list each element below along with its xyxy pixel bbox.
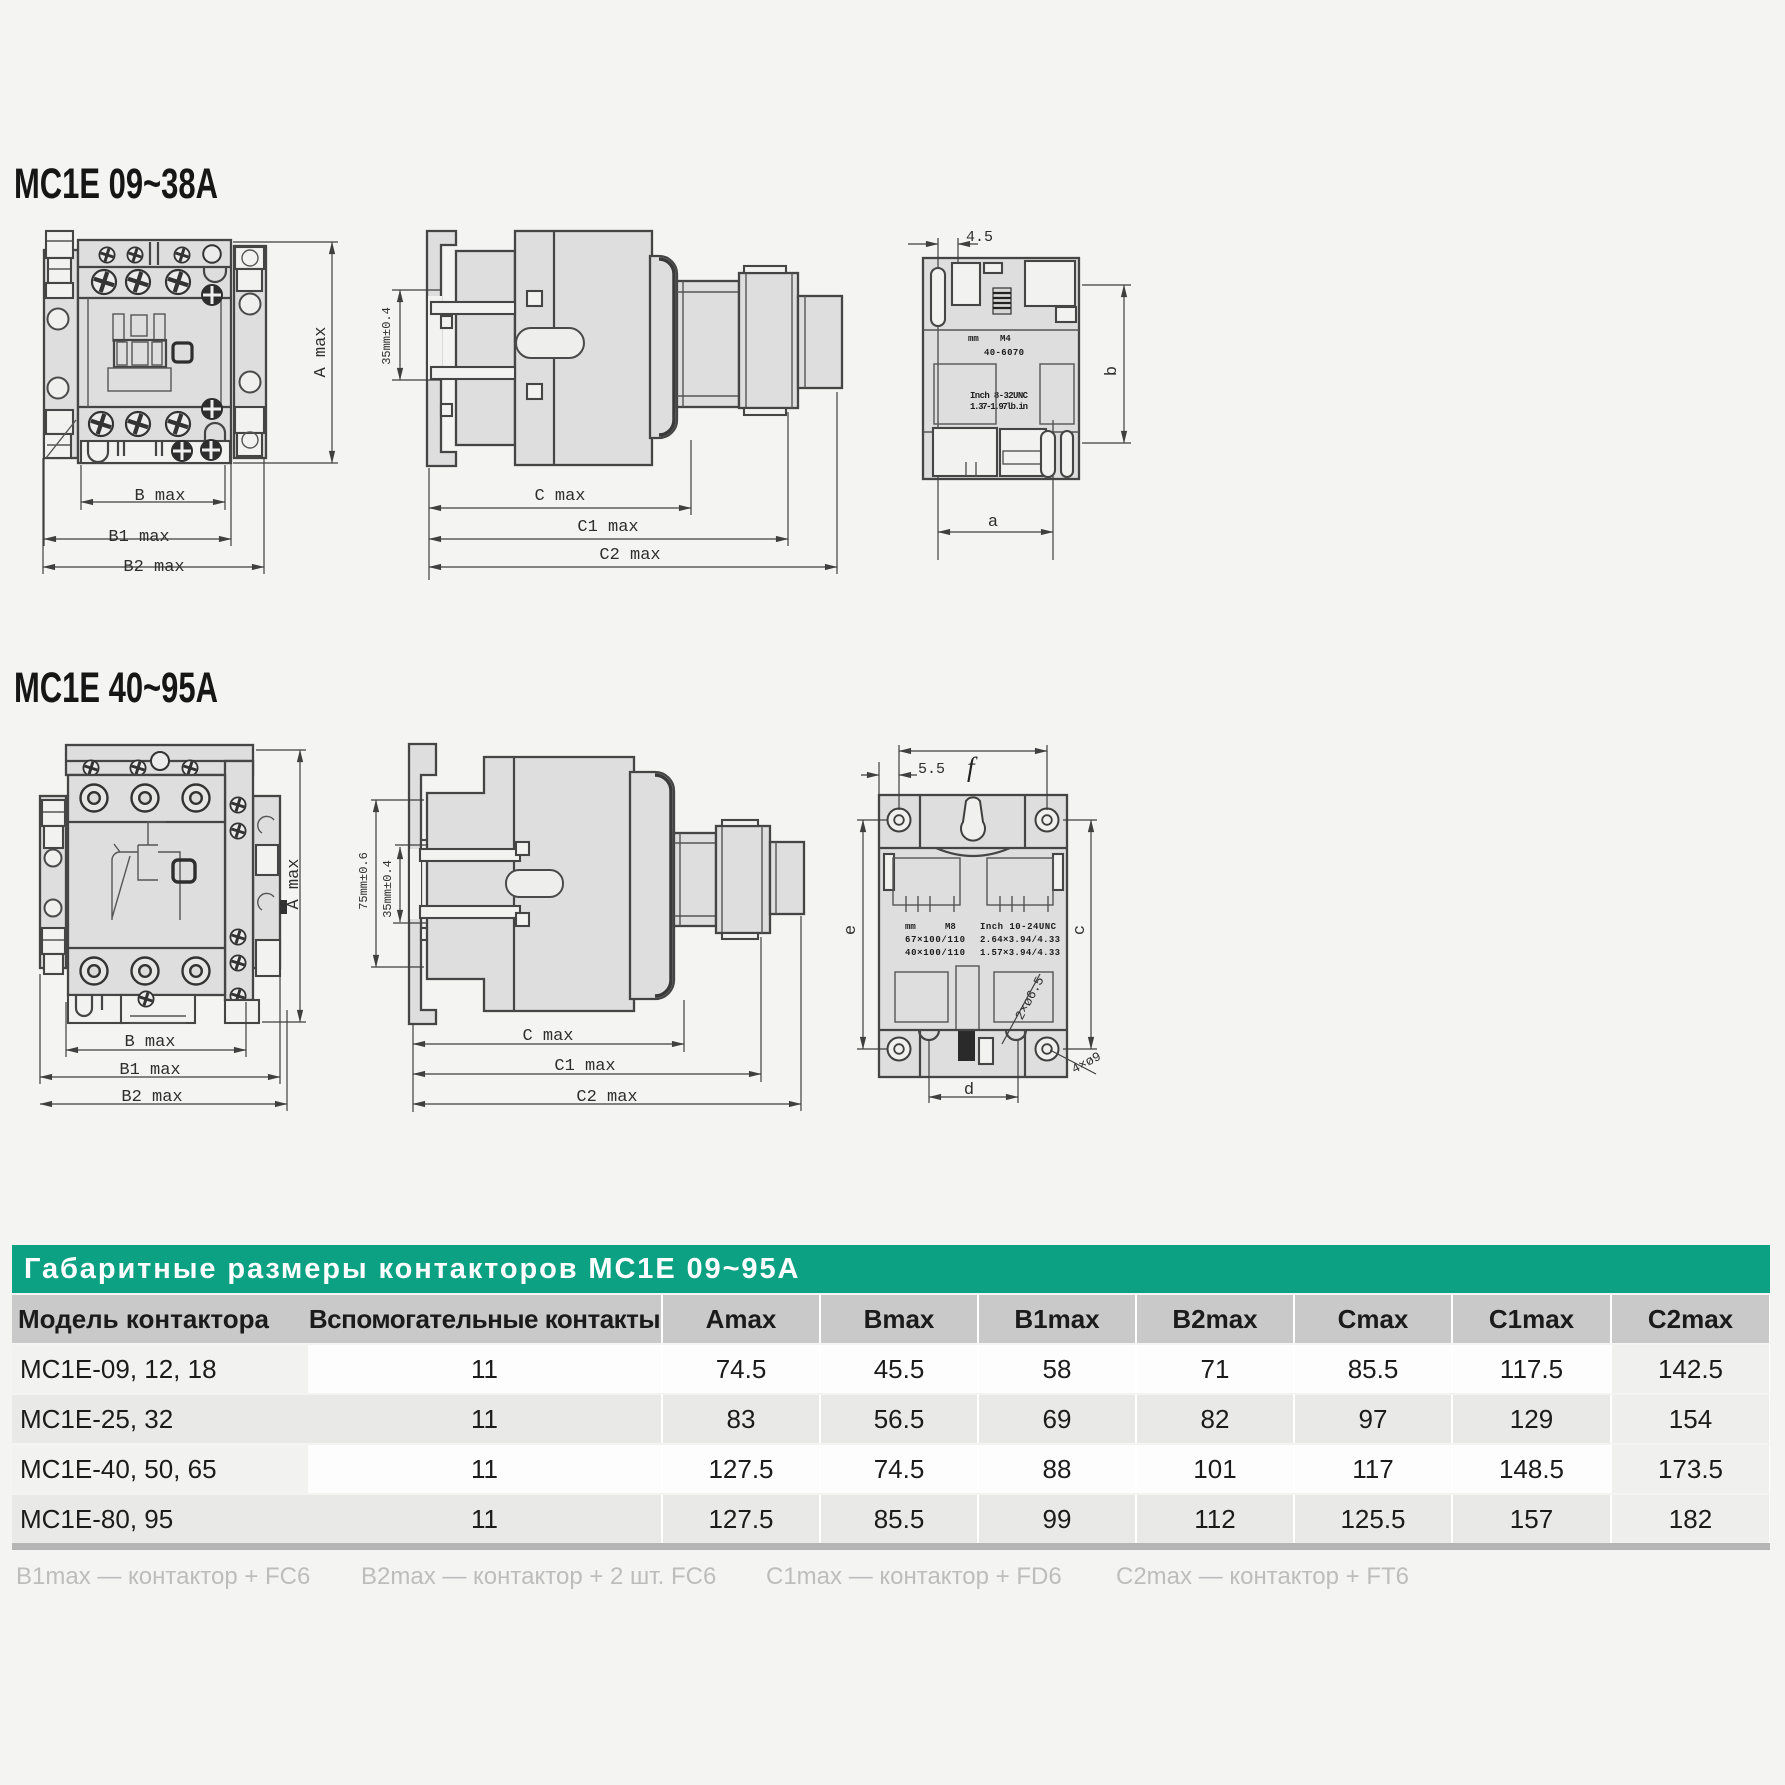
svg-text:Inch 8-32UNC: Inch 8-32UNC: [970, 391, 1029, 401]
svg-text:M8: M8: [945, 922, 956, 932]
svg-text:B2 max: B2 max: [121, 1088, 182, 1107]
svg-text:B max: B max: [134, 487, 185, 506]
svg-text:A max: A max: [312, 326, 331, 377]
svg-text:C2 max: C2 max: [599, 546, 660, 565]
svg-text:1.37-1.97lb.in: 1.37-1.97lb.in: [970, 402, 1028, 412]
svg-text:40-6070: 40-6070: [984, 348, 1024, 358]
svg-text:C2 max: C2 max: [576, 1088, 637, 1107]
svg-text:Inch 10-24UNC: Inch 10-24UNC: [980, 922, 1057, 932]
svg-text:b: b: [1103, 366, 1122, 376]
svg-text:B1 max: B1 max: [108, 528, 169, 547]
svg-text:2.64×3.94/4.33: 2.64×3.94/4.33: [980, 935, 1060, 945]
svg-text:35mm±0.4: 35mm±0.4: [380, 307, 394, 365]
svg-text:d: d: [964, 1081, 974, 1100]
svg-text:C1 max: C1 max: [554, 1057, 615, 1076]
svg-text:mm: mm: [968, 334, 979, 344]
svg-text:e: e: [842, 925, 861, 935]
svg-text:67×100/110: 67×100/110: [905, 935, 965, 945]
svg-text:5.5: 5.5: [918, 761, 945, 778]
svg-text:B2 max: B2 max: [123, 558, 184, 577]
svg-text:C1 max: C1 max: [577, 518, 638, 537]
svg-text:B max: B max: [124, 1033, 175, 1052]
svg-text:B1 max: B1 max: [119, 1061, 180, 1080]
svg-text:a: a: [988, 513, 998, 532]
svg-text:4×ø9: 4×ø9: [1069, 1049, 1104, 1077]
svg-text:75mm±0.6: 75mm±0.6: [357, 852, 371, 910]
svg-text:M4: M4: [1000, 334, 1011, 344]
svg-text:mm: mm: [905, 922, 916, 932]
svg-text:C max: C max: [522, 1027, 573, 1046]
svg-text:35mm±0.4: 35mm±0.4: [381, 860, 395, 918]
svg-text:f: f: [967, 752, 978, 782]
svg-text:40×100/110: 40×100/110: [905, 948, 965, 958]
svg-text:C max: C max: [534, 487, 585, 506]
svg-text:c: c: [1071, 925, 1090, 935]
svg-text:4.5: 4.5: [966, 229, 993, 246]
svg-text:1.57×3.94/4.33: 1.57×3.94/4.33: [980, 948, 1060, 958]
svg-text:A max: A max: [285, 858, 304, 909]
